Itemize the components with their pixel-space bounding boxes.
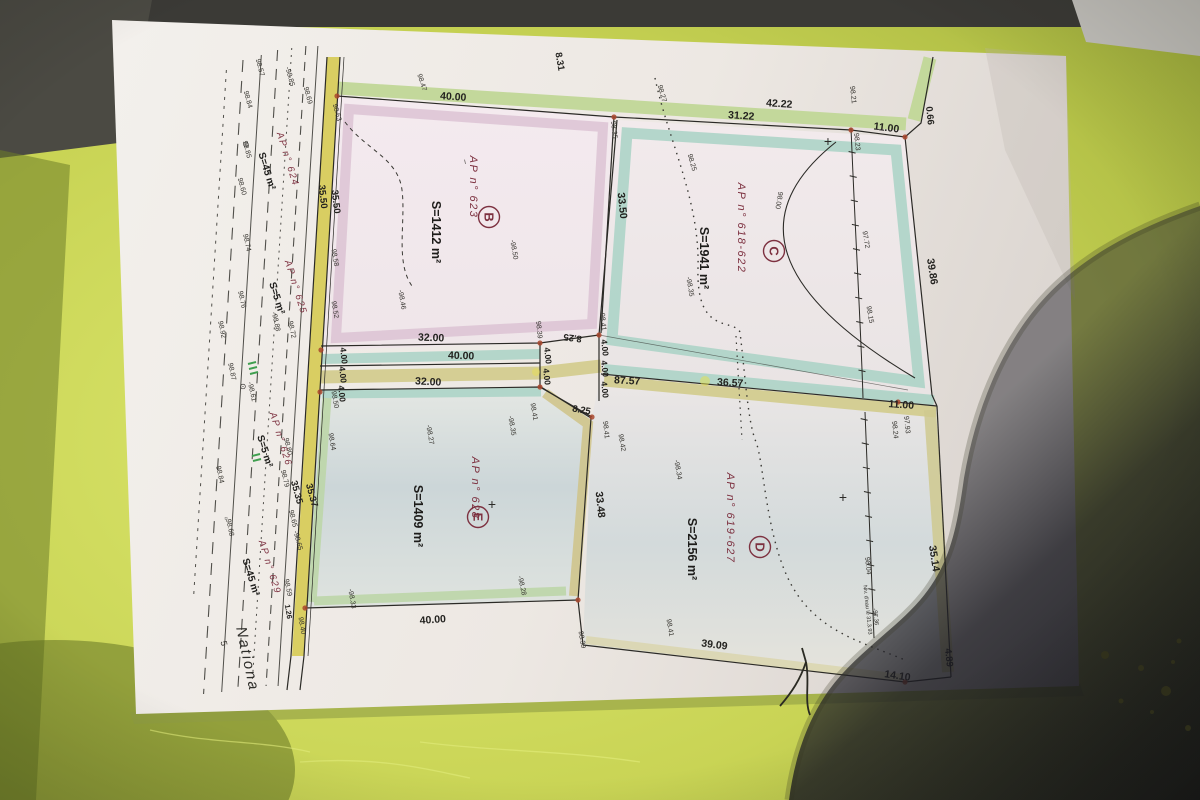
photo-vignette: [0, 0, 1200, 800]
photo-of-survey-plan: 40.0031.2242.2211.000.6639.868.3133.5035…: [0, 0, 1200, 800]
photo-canvas: 40.0031.2242.2211.000.6639.868.3133.5035…: [0, 0, 1200, 800]
